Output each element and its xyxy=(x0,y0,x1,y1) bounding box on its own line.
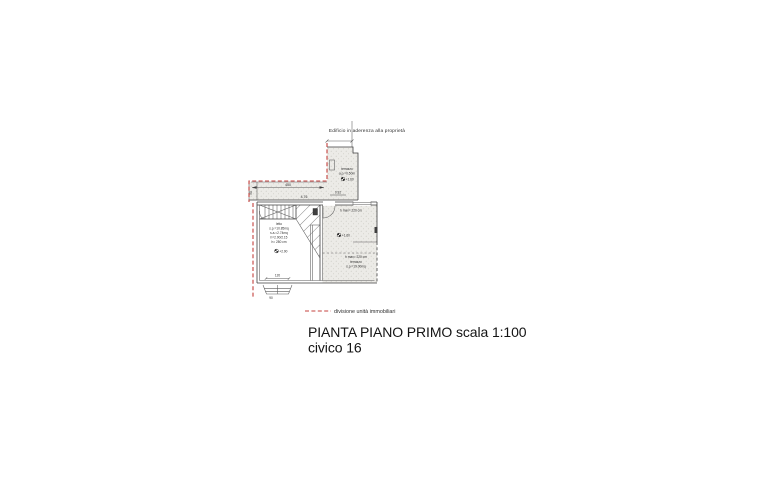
room-area1: s.p.=10.85mq xyxy=(269,227,289,231)
terrace-name: terrazzo xyxy=(350,260,362,264)
flue-block xyxy=(313,209,318,216)
level-marker-icon xyxy=(275,249,279,253)
bedroom-labels: letto s.p.=10.85mq s.a.=2.74mq h=2.90/2.… xyxy=(265,222,290,280)
bay-dim: 90 xyxy=(269,296,273,300)
pillar xyxy=(375,227,378,233)
room-height1: h=2.90/2.15 xyxy=(271,236,288,240)
right-terrace-fill xyxy=(323,205,378,283)
level-marker-icon xyxy=(341,177,345,181)
room-name: letto xyxy=(276,222,282,226)
floor-plan-page: Edificio in aderenza alla proprietà terr… xyxy=(0,0,764,492)
terrace-area: s.p.=19.00mq xyxy=(346,264,366,268)
legend: divisione unità immobiliari xyxy=(305,309,395,315)
room-dim-width: 120 xyxy=(275,274,281,278)
top-dimension xyxy=(326,140,354,143)
door-dim: 0.92 xyxy=(335,191,341,195)
room-level: +2.90 xyxy=(279,249,287,253)
upper-terrace-level: +1.60 xyxy=(346,177,354,181)
terrace-level: +1.60 xyxy=(342,233,350,237)
room-area2: s.a.=2.74mq xyxy=(270,231,288,235)
title-line2: civico 16 xyxy=(308,340,362,356)
adjacency-note-label: Edificio in aderenza alla proprietà xyxy=(329,128,405,134)
plan-title: PIANTA PIANO PRIMO scala 1:100 civico 16 xyxy=(308,324,527,356)
legend-label: divisione unità immobiliari xyxy=(334,309,395,315)
upper-terrace-label: terrazzo xyxy=(341,167,353,171)
upper-terrace-parapet: a.p.=0.50m xyxy=(339,172,355,176)
hmax-upper: h max= 220 cm xyxy=(340,209,362,213)
strip-dim-top: 450 xyxy=(285,183,291,187)
level-marker-icon xyxy=(337,233,341,237)
adjacency-note: Edificio in aderenza alla proprietà xyxy=(329,121,405,147)
staircase xyxy=(260,205,297,219)
bay-window: 90 xyxy=(263,285,292,300)
hmax-lower: h max= 220 cm xyxy=(345,255,367,259)
strip-dim-mid: 4.76 xyxy=(301,195,308,199)
title-line1: PIANTA PIANO PRIMO scala 1:100 xyxy=(308,324,527,340)
window-symbols xyxy=(353,201,371,205)
floor-plan-canvas: Edificio in aderenza alla proprietà terr… xyxy=(0,0,764,492)
room-height2: h= 280 cm xyxy=(272,240,287,244)
